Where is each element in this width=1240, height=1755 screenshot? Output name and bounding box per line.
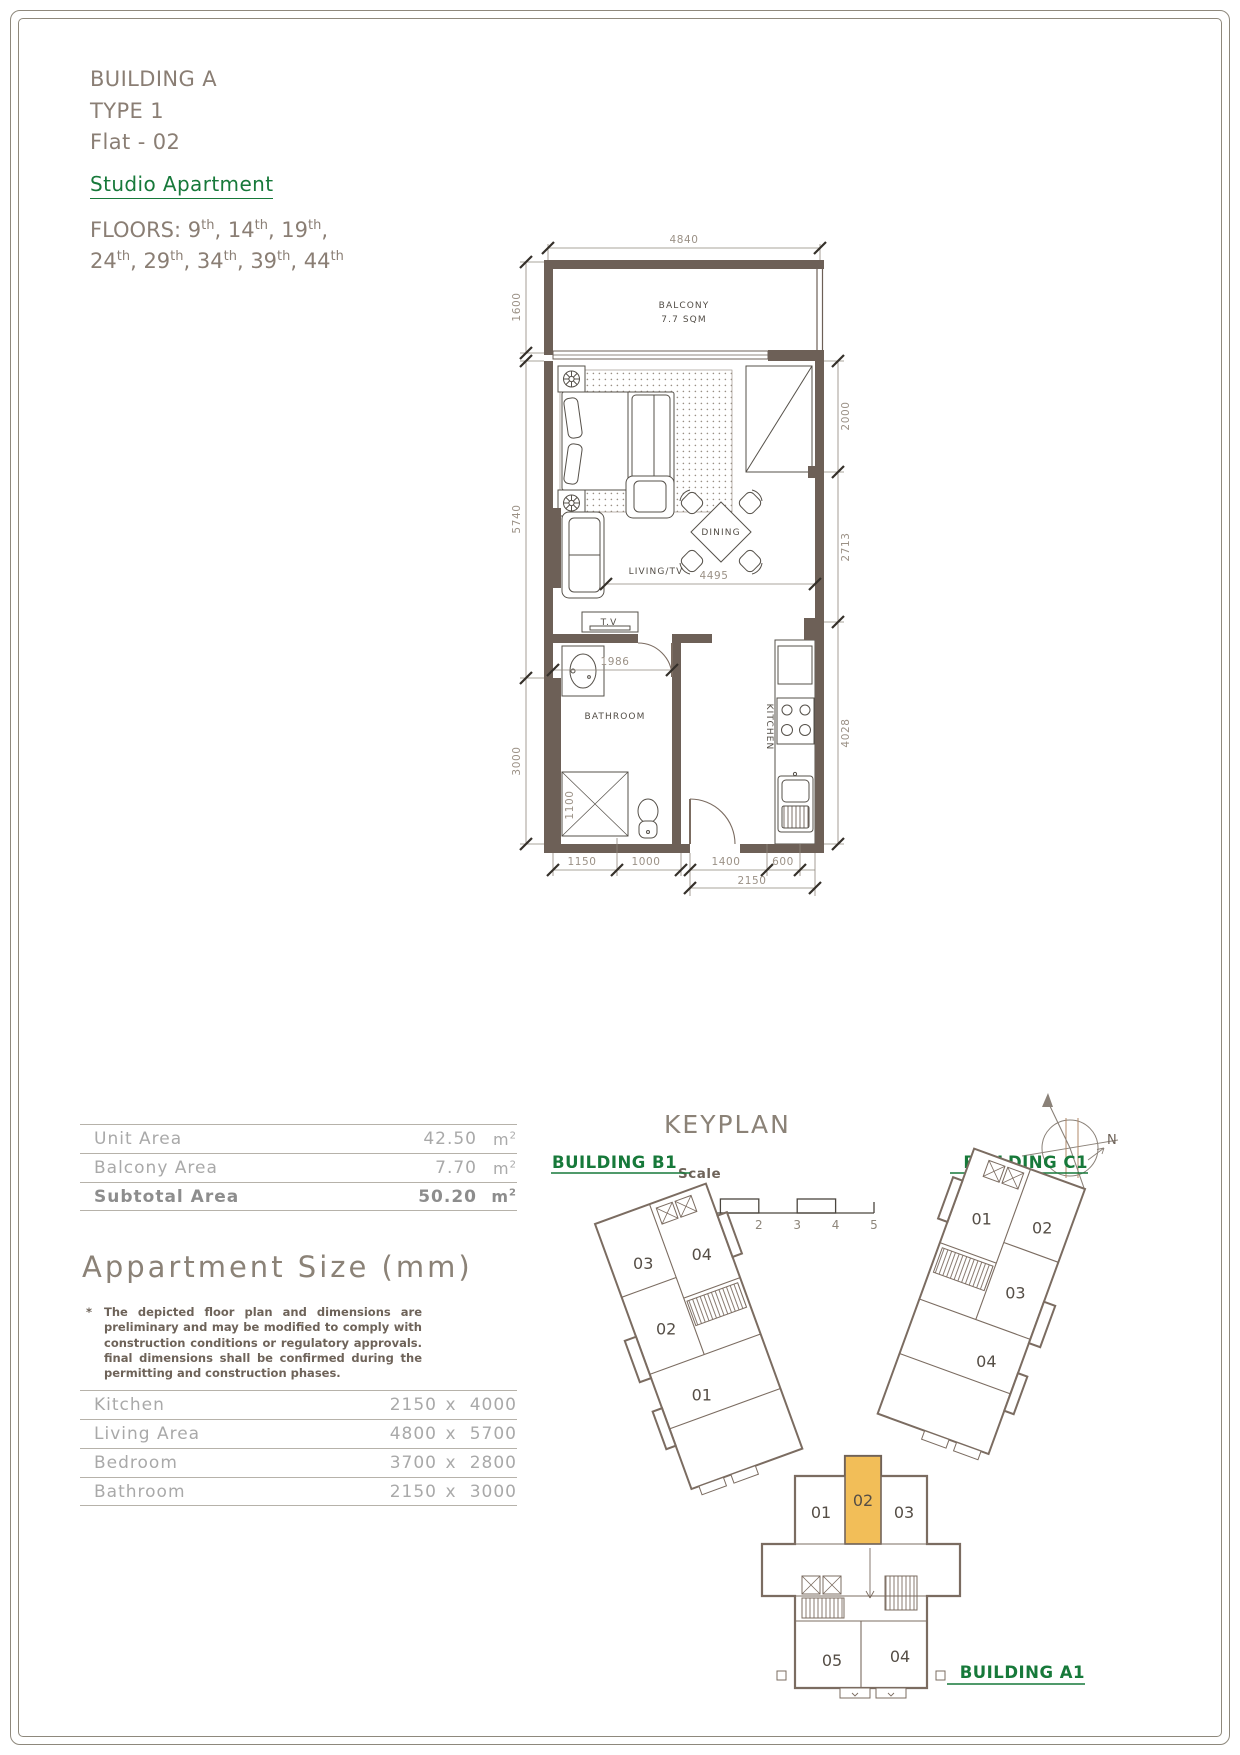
- nightstand-top: [558, 366, 585, 392]
- c1-unit-02: 02: [1032, 1219, 1052, 1238]
- keyplan-map: BUILDING B1 03 04 02: [540, 1146, 1200, 1711]
- building-title: BUILDING A: [90, 64, 344, 96]
- table-row: Unit Area 42.50 m2: [80, 1124, 517, 1153]
- a1-unit-02: 02: [853, 1491, 873, 1510]
- a1-unit-05: 05: [822, 1651, 842, 1670]
- kitchen-label: KITCHEN: [764, 704, 774, 751]
- dim-right-top: 2000: [840, 401, 852, 430]
- building-a1-plan: 01 02 03 04 05: [762, 1456, 960, 1698]
- bathroom-door: [638, 643, 672, 677]
- dim-b4: 600: [772, 856, 794, 868]
- dim-right-mid: 2713: [840, 532, 852, 561]
- bathroom-label: BATHROOM: [585, 712, 646, 722]
- b1-unit-03: 03: [633, 1254, 653, 1273]
- size-table: Kitchen 2150x4000 Living Area 4800x5700 …: [80, 1390, 517, 1506]
- unit-floor-plan: DINING T.V: [478, 222, 858, 922]
- keyplan-title: KEYPLAN: [664, 1110, 791, 1139]
- floors-label: FLOORS:: [90, 218, 181, 242]
- area-table: Unit Area 42.50 m2 Balcony Area 7.70 m2 …: [80, 1124, 517, 1211]
- c1-unit-04: 04: [976, 1352, 996, 1371]
- a1-unit-04: 04: [890, 1647, 910, 1666]
- balcony-label: BALCONY: [659, 301, 710, 311]
- disclaimer-note: * The depicted floor plan and dimensions…: [86, 1305, 422, 1381]
- table-row: Bathroom 2150x3000: [80, 1477, 517, 1506]
- dim-balcony-height: 1600: [511, 292, 523, 321]
- b1-unit-02: 02: [656, 1320, 676, 1339]
- floorplan-sheet: BUILDING A TYPE 1 Flat - 02 Studio Apart…: [0, 0, 1240, 1755]
- b1-unit-01: 01: [692, 1385, 712, 1404]
- table-row-subtotal: Subtotal Area 50.20 m2: [80, 1182, 517, 1211]
- entry-door: [690, 799, 735, 844]
- building-b1-plan: 03 04 02 01: [584, 1180, 815, 1501]
- balcony-area-label: 7.7 SQM: [661, 315, 706, 325]
- dim-left-bath: 3000: [511, 746, 523, 775]
- building-b1-label: BUILDING B1: [552, 1153, 677, 1172]
- dining-label: DINING: [701, 528, 740, 538]
- dim-bathroom-width: 1986: [600, 656, 629, 668]
- bed: [562, 392, 674, 490]
- b1-unit-04: 04: [692, 1245, 712, 1264]
- dim-living-width: 4495: [699, 570, 728, 582]
- c1-unit-03: 03: [1005, 1284, 1025, 1303]
- kitchen-counter: [775, 640, 815, 844]
- unit-type: TYPE 1: [90, 96, 344, 128]
- building-c1-plan: 02 01 03 04: [865, 1146, 1096, 1467]
- flat-number: Flat - 02: [90, 127, 344, 159]
- a1-unit-01: 01: [811, 1503, 831, 1522]
- balcony-railing: [817, 269, 823, 351]
- floors-line-1: FLOORS: 9th, 14th, 19th,: [90, 215, 344, 247]
- wardrobe: [746, 366, 812, 472]
- a1-unit-03: 03: [894, 1503, 914, 1522]
- dim-b1: 1150: [567, 856, 596, 868]
- size-section-title: Appartment Size (mm): [82, 1250, 473, 1284]
- toilet: [638, 799, 658, 838]
- tv-label: T.V: [600, 618, 618, 628]
- dim-b2: 1000: [631, 856, 660, 868]
- dim-left-main: 5740: [511, 504, 523, 533]
- table-row: Balcony Area 7.70 m2: [80, 1153, 517, 1182]
- dim-right-bottom: 4028: [840, 718, 852, 747]
- dim-shower: 1100: [564, 790, 576, 819]
- table-row: Bedroom 3700x2800: [80, 1448, 517, 1477]
- sofa: [562, 512, 604, 598]
- dim-b5: 2150: [737, 875, 766, 887]
- c1-unit-01: 01: [971, 1210, 991, 1229]
- table-row: Kitchen 2150x4000: [80, 1390, 517, 1419]
- balcony-window: [553, 269, 823, 359]
- floors-line-2: 24th, 29th, 34th, 39th, 44th: [90, 246, 344, 278]
- building-a1-label: BUILDING A1: [960, 1663, 1085, 1682]
- table-row: Living Area 4800x5700: [80, 1419, 517, 1448]
- asterisk: *: [86, 1305, 92, 1381]
- dim-b3: 1400: [711, 856, 740, 868]
- apartment-category: Studio Apartment: [90, 172, 273, 199]
- bathroom-sink: [562, 646, 604, 696]
- living-label: LIVING/TV: [629, 567, 684, 577]
- title-block: BUILDING A TYPE 1 Flat - 02 Studio Apart…: [90, 64, 344, 278]
- armchair: [626, 476, 674, 518]
- dim-top: 4840: [669, 234, 698, 246]
